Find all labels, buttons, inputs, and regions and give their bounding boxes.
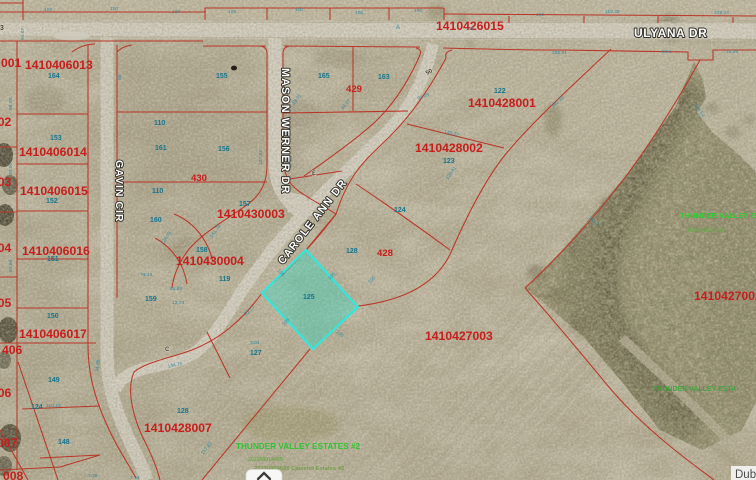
svg-text:428: 428 bbox=[377, 248, 394, 259]
svg-text:164: 164 bbox=[48, 73, 60, 80]
svg-text:122: 122 bbox=[494, 88, 506, 95]
svg-text:163: 163 bbox=[378, 74, 390, 81]
svg-text:153: 153 bbox=[50, 135, 62, 142]
svg-text:155: 155 bbox=[216, 73, 228, 80]
svg-text:100: 100 bbox=[536, 12, 544, 18]
svg-text:157: 157 bbox=[239, 201, 251, 208]
svg-text:C: C bbox=[165, 347, 170, 353]
svg-text:A: A bbox=[396, 25, 400, 31]
svg-text:94.1: 94.1 bbox=[662, 49, 672, 55]
svg-text:406: 406 bbox=[2, 343, 23, 357]
svg-text:12.74: 12.74 bbox=[172, 300, 185, 306]
svg-text:110: 110 bbox=[152, 188, 163, 195]
svg-text:159: 159 bbox=[145, 296, 157, 303]
svg-text:008: 008 bbox=[3, 469, 24, 480]
svg-text:007: 007 bbox=[0, 436, 18, 450]
svg-text:98.00: 98.00 bbox=[8, 162, 14, 175]
svg-text:THUNDER VALLEY ESTATES #2: THUNDER VALLEY ESTATES #2 bbox=[236, 442, 360, 451]
svg-text:ULYANA DR: ULYANA DR bbox=[634, 26, 707, 40]
svg-text:127: 127 bbox=[250, 350, 262, 357]
svg-text:148: 148 bbox=[58, 439, 70, 446]
svg-text:GAVIN CIR: GAVIN CIR bbox=[113, 160, 125, 222]
svg-text:1410406017: 1410406017 bbox=[19, 327, 87, 341]
svg-text:THUNDER VALLEY ES: THUNDER VALLEY ES bbox=[680, 211, 756, 220]
svg-text:91.07: 91.07 bbox=[20, 27, 26, 40]
svg-text:3.04: 3.04 bbox=[250, 340, 260, 346]
svg-text:156: 156 bbox=[218, 146, 230, 153]
svg-text:110: 110 bbox=[154, 120, 165, 127]
svg-text:123: 123 bbox=[443, 158, 455, 165]
svg-text:100: 100 bbox=[228, 9, 236, 15]
svg-text:20230001445S: 20230001445S bbox=[248, 457, 284, 463]
svg-text:1410406013: 1410406013 bbox=[25, 58, 93, 72]
svg-text:102: 102 bbox=[0, 115, 12, 129]
svg-text:429: 429 bbox=[346, 84, 362, 95]
svg-text:124: 124 bbox=[394, 207, 406, 214]
svg-text:3: 3 bbox=[0, 25, 4, 32]
svg-text:THUNDER VALLEY ESTA: THUNDER VALLEY ESTA bbox=[653, 386, 736, 393]
svg-text:128: 128 bbox=[177, 408, 189, 415]
svg-text:160: 160 bbox=[150, 217, 162, 224]
svg-text:1410406015: 1410406015 bbox=[20, 184, 88, 198]
svg-text:100: 100 bbox=[466, 26, 474, 32]
svg-text:100: 100 bbox=[295, 7, 303, 13]
svg-text:MASON WERNER DR: MASON WERNER DR bbox=[279, 68, 291, 194]
svg-text:128: 128 bbox=[346, 248, 358, 255]
svg-text:84.88: 84.88 bbox=[8, 259, 14, 272]
svg-text:152: 152 bbox=[46, 198, 58, 205]
svg-text:149: 149 bbox=[48, 377, 60, 384]
svg-text:105: 105 bbox=[0, 296, 12, 310]
svg-text:161: 161 bbox=[155, 145, 167, 152]
svg-text:1410428002: 1410428002 bbox=[415, 141, 483, 155]
svg-text:110.15: 110.15 bbox=[46, 403, 61, 409]
svg-text:E: E bbox=[312, 171, 316, 177]
svg-text:15.28: 15.28 bbox=[726, 49, 739, 55]
svg-text:103: 103 bbox=[0, 175, 12, 189]
svg-text:158: 158 bbox=[196, 247, 208, 254]
svg-text:100: 100 bbox=[44, 7, 52, 13]
svg-text:100: 100 bbox=[414, 8, 422, 14]
svg-text:288.01: 288.01 bbox=[552, 50, 567, 56]
svg-text:124: 124 bbox=[31, 404, 43, 411]
svg-text:119.38: 119.38 bbox=[605, 9, 620, 15]
svg-text:150: 150 bbox=[47, 313, 59, 320]
svg-text:1410430003: 1410430003 bbox=[217, 207, 285, 221]
svg-text:125: 125 bbox=[303, 294, 315, 301]
svg-text:151: 151 bbox=[47, 256, 59, 263]
svg-text:001: 001 bbox=[1, 56, 22, 70]
svg-text:74.42: 74.42 bbox=[140, 272, 153, 278]
svg-text:1410428001: 1410428001 bbox=[468, 96, 536, 110]
svg-text:106: 106 bbox=[0, 386, 12, 400]
svg-text:165: 165 bbox=[318, 73, 330, 80]
svg-text:88.00: 88.00 bbox=[8, 97, 14, 110]
svg-text:Dub: Dub bbox=[735, 469, 756, 480]
svg-text:96: 96 bbox=[117, 74, 123, 80]
svg-text:104: 104 bbox=[0, 241, 12, 255]
svg-text:1410430004: 1410430004 bbox=[176, 254, 244, 268]
svg-text:119: 119 bbox=[219, 276, 230, 283]
svg-text:100: 100 bbox=[172, 9, 180, 15]
svg-text:82.85: 82.85 bbox=[170, 286, 183, 292]
svg-text:7.44: 7.44 bbox=[130, 475, 140, 480]
svg-text:1410427003: 1410427003 bbox=[425, 329, 493, 343]
svg-text:7.48: 7.48 bbox=[88, 473, 98, 479]
svg-text:430: 430 bbox=[191, 173, 207, 184]
svg-text:1410406014: 1410406014 bbox=[19, 145, 87, 159]
svg-text:1410428007: 1410428007 bbox=[144, 421, 212, 435]
svg-text:229.04: 229.04 bbox=[714, 10, 729, 16]
svg-text:100: 100 bbox=[110, 6, 118, 12]
svg-text:1410427002: 1410427002 bbox=[694, 289, 756, 303]
svg-text:127.63: 127.63 bbox=[258, 150, 264, 165]
svg-text:2023-0012-B10: 2023-0012-B10 bbox=[687, 228, 724, 234]
svg-text:100: 100 bbox=[355, 10, 363, 16]
